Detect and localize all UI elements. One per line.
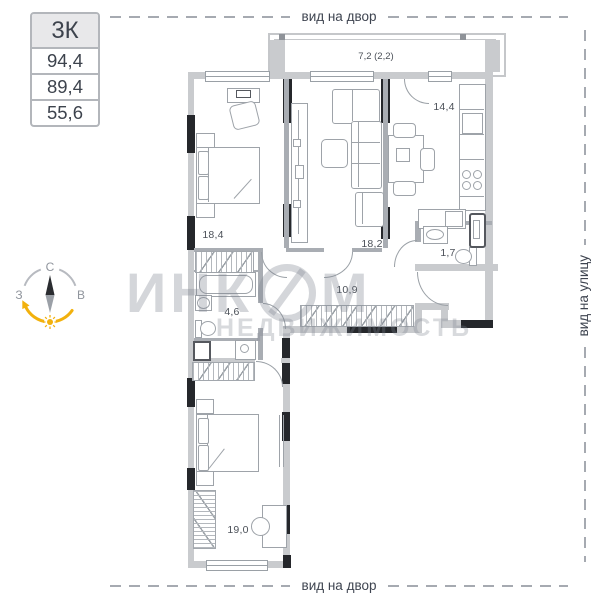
wall-right	[485, 72, 493, 328]
stove-burner	[462, 170, 471, 179]
view-line-bottom: вид на двор	[110, 578, 568, 593]
balcony-rail-post	[460, 34, 466, 40]
watermark-brand-suffix: М	[321, 265, 372, 321]
dashed-line	[110, 585, 290, 587]
sofa-cushion-line	[351, 163, 380, 164]
window	[205, 71, 270, 82]
room-label-living: 18,2	[352, 238, 392, 250]
pillow	[198, 176, 209, 200]
wall-radiator	[279, 415, 284, 467]
sofa-section	[351, 121, 382, 189]
table-item	[396, 148, 410, 162]
room-label-bedroom1: 18,4	[193, 229, 233, 241]
dining-chair	[393, 181, 416, 196]
closet-hatched-vertical	[193, 490, 216, 549]
balcony-area-label: 7,2 (2,2)	[316, 51, 436, 62]
counter-divider	[459, 159, 484, 160]
dashed-line	[110, 16, 290, 18]
compass-arc-nw	[25, 270, 41, 286]
desk-item	[236, 90, 251, 98]
wall-rooms-bottom	[286, 248, 324, 252]
area-reduced: 89,4	[32, 75, 98, 101]
kitchen-sink	[445, 211, 463, 227]
pillow	[198, 151, 209, 175]
sofa-cushion-line	[352, 90, 353, 121]
wardrobe-knob	[295, 165, 304, 179]
pillow	[198, 445, 209, 471]
armchair-line	[362, 193, 363, 224]
balcony-rail-post	[279, 34, 285, 40]
closet-hatched	[192, 362, 255, 381]
apartment-type-label: 3К	[32, 14, 98, 49]
compass-west-label: З	[15, 288, 22, 302]
watermark-brand-prefix: ИНК	[126, 265, 253, 321]
wall-bedroom1-living	[284, 79, 289, 248]
sun-icon	[47, 319, 53, 325]
view-label-bottom: вид на двор	[302, 578, 377, 593]
black-pier	[187, 378, 195, 407]
window	[310, 71, 374, 82]
black-pier	[187, 115, 195, 153]
floor-plan-page: вид на двор вид на двор вид на улицу 3К …	[0, 0, 600, 600]
compass-needle-north	[46, 275, 55, 295]
sofa-cushion-line	[351, 142, 380, 143]
dining-chair	[393, 123, 416, 138]
area-living: 55,6	[32, 101, 98, 125]
nightstand	[196, 399, 214, 414]
coffee-table	[321, 139, 348, 168]
sofa-cushion-line	[358, 121, 359, 187]
view-label-top: вид на двор	[302, 9, 377, 24]
dashed-line	[388, 16, 568, 18]
wc-sink-bowl	[426, 229, 444, 240]
fridge	[462, 113, 483, 134]
utility-shaft-inner	[473, 220, 480, 239]
black-pier	[283, 555, 291, 568]
sofa-section	[332, 89, 380, 124]
balcony-side-wall	[270, 40, 285, 72]
compass-north-label: С	[46, 260, 55, 274]
pillow	[198, 418, 209, 444]
electrical-panel	[193, 341, 211, 361]
black-pier	[187, 468, 195, 490]
stove-burner	[462, 181, 471, 190]
compass-east-label: В	[77, 288, 85, 302]
wardrobe-handle	[293, 200, 301, 208]
nightstand	[196, 471, 214, 486]
wardrobe-handle	[293, 139, 301, 147]
area-total: 94,4	[32, 49, 98, 75]
compass-needle-south	[46, 295, 55, 313]
counter-divider	[459, 134, 484, 135]
view-label-right: вид на улицу	[576, 255, 591, 336]
dashed-line	[584, 30, 586, 245]
entry-door-arc	[417, 272, 448, 306]
view-line-top: вид на двор	[110, 9, 568, 24]
dining-chair	[420, 148, 435, 171]
watermark-subtitle: НЕДВИЖИМОСТЬ	[216, 316, 472, 341]
apartment-info-box: 3К 94,4 89,4 55,6	[30, 12, 100, 127]
bedroom2-door-arc	[256, 361, 283, 387]
stove-burner	[473, 170, 482, 179]
window	[428, 71, 452, 82]
room-label-kitchen: 14,4	[424, 101, 464, 113]
compass: С З В	[12, 254, 88, 334]
balcony-side-wall	[485, 40, 500, 72]
armchair	[355, 192, 384, 227]
chair	[228, 100, 260, 131]
window	[206, 560, 268, 571]
room-label-bedroom2: 19,0	[218, 524, 258, 536]
stove-burner	[473, 181, 482, 190]
room-label-wc: 1,7	[430, 247, 466, 259]
wall-bedroom2-top	[281, 358, 290, 363]
washing-machine-door	[240, 344, 249, 353]
dashed-line	[388, 585, 568, 587]
wall-wc-bottom	[415, 264, 498, 271]
view-line-right: вид на улицу	[577, 30, 593, 562]
nightstand	[196, 133, 215, 148]
nightstand	[196, 203, 215, 218]
wc-door-arc	[394, 240, 417, 267]
dashed-line	[584, 347, 586, 562]
compass-arc-ne	[59, 270, 75, 286]
counter-divider	[459, 196, 484, 197]
